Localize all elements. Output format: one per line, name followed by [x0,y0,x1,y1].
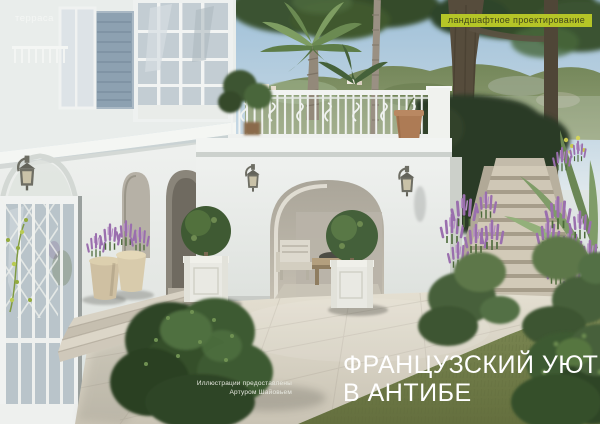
hero-image [0,0,600,424]
conservatory-window [133,0,233,122]
loggia [196,157,452,303]
magazine-page: терраса ландшафтное проектирование ФРАНЦ… [0,0,600,424]
upper-window [60,8,95,108]
category-badge: ландшафтное проектирование [441,14,592,27]
window-shutter [95,12,133,108]
